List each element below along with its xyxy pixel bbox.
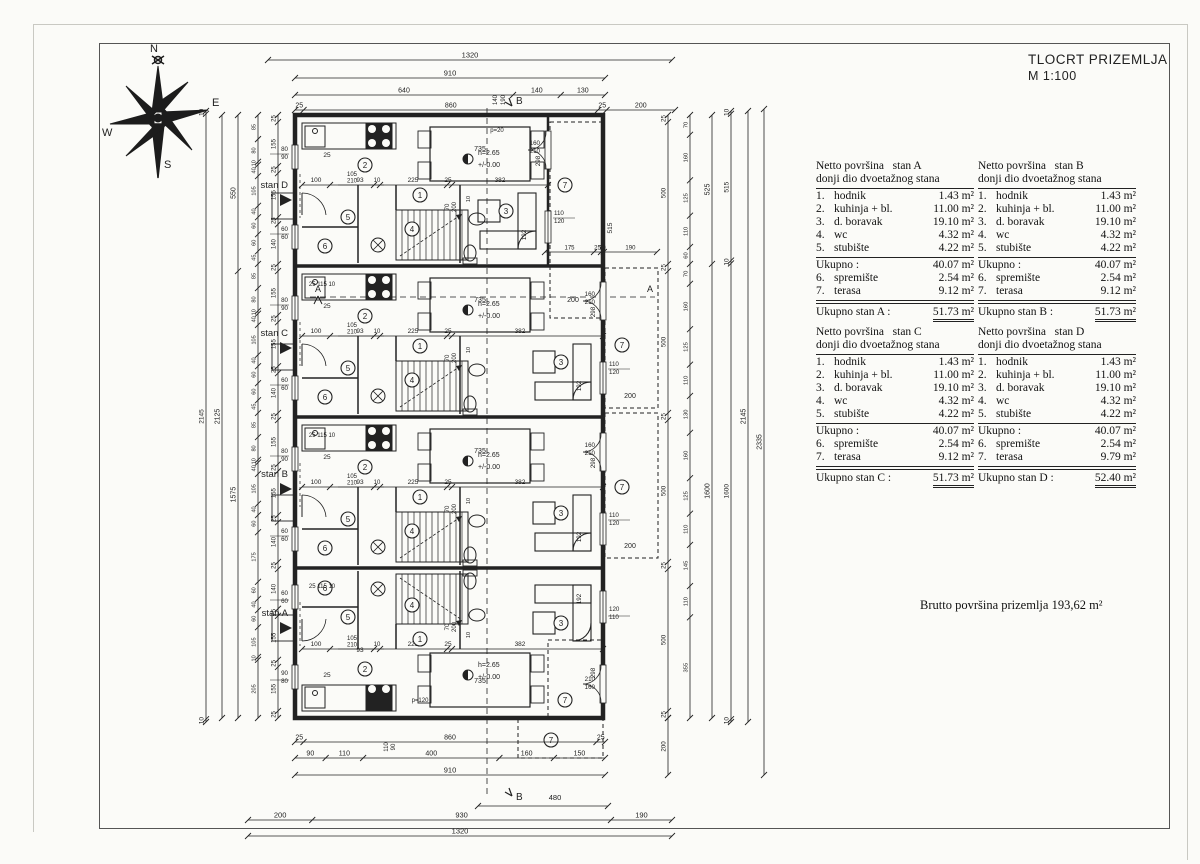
svg-text:80: 80 (281, 297, 288, 304)
area-table-stan-b: Netto površina stan B donji dio dvoetažn… (978, 160, 1136, 322)
svg-text:205: 205 (252, 684, 258, 693)
svg-text:105: 105 (347, 172, 358, 178)
svg-text:125: 125 (684, 491, 690, 501)
svg-text:1320: 1320 (452, 827, 469, 836)
svg-text:3: 3 (504, 207, 509, 216)
svg-text:225: 225 (408, 328, 419, 335)
svg-text:25: 25 (597, 735, 605, 742)
svg-text:25: 25 (272, 659, 278, 666)
svg-text:85: 85 (252, 422, 258, 428)
svg-text:60: 60 (252, 223, 258, 229)
total-row: Ukupno stan A :51.73 m² (816, 306, 974, 322)
svg-text:105: 105 (252, 335, 258, 344)
svg-text:515: 515 (607, 222, 614, 233)
svg-text:80: 80 (281, 678, 288, 685)
svg-text:90: 90 (281, 154, 288, 161)
svg-text:155: 155 (272, 287, 278, 298)
table-header: Netto površina stan D donji dio dvoetažn… (978, 326, 1136, 352)
svg-text:60: 60 (281, 377, 288, 384)
svg-text:1: 1 (418, 191, 423, 200)
svg-text:25: 25 (444, 177, 452, 184)
svg-text:+/-0.00: +/-0.00 (478, 464, 500, 471)
svg-text:125: 125 (684, 193, 690, 203)
svg-text:5: 5 (346, 213, 351, 222)
svg-text:1: 1 (418, 493, 423, 502)
svg-text:60: 60 (252, 389, 258, 395)
subtotal-row: Ukupno :40.07 m² (978, 425, 1136, 438)
svg-text:382: 382 (495, 177, 506, 184)
svg-text:stan D: stan D (261, 180, 289, 191)
svg-text:160: 160 (684, 153, 690, 163)
svg-text:25: 25 (323, 672, 331, 679)
svg-text:120: 120 (609, 606, 620, 613)
svg-text:140: 140 (531, 88, 543, 95)
svg-text:355: 355 (684, 663, 690, 673)
svg-text:200: 200 (624, 543, 636, 550)
svg-text:160: 160 (684, 302, 690, 312)
svg-text:200: 200 (274, 811, 287, 820)
terraces: 720072007200775151752510190 (518, 122, 660, 758)
svg-text:60: 60 (281, 590, 288, 597)
table-row: 5.stubište4.22 m² (978, 242, 1136, 255)
svg-text:25: 25 (272, 464, 278, 471)
svg-text:298: 298 (535, 155, 542, 166)
svg-text:210: 210 (347, 481, 358, 487)
svg-text:70: 70 (684, 271, 690, 277)
svg-text:155: 155 (272, 436, 278, 447)
svg-text:200: 200 (452, 201, 458, 212)
table-row: 4.wc4.32 m² (816, 395, 974, 408)
svg-text:90: 90 (391, 743, 397, 750)
area-table-stan-a: Netto površina stan A donji dio dvoetažn… (816, 160, 974, 322)
title-block: TLOCRT PRIZEMLJA M 1:100 (1028, 52, 1168, 83)
svg-text:200: 200 (452, 503, 458, 514)
svg-text:2: 2 (363, 161, 368, 170)
svg-text:25: 25 (272, 315, 278, 322)
svg-text:210: 210 (585, 299, 596, 306)
svg-text:105: 105 (252, 484, 258, 493)
unit-stan-d: 25932735h=2.65+/-0.00p=20100105210102252… (261, 123, 575, 264)
svg-text:105: 105 (252, 186, 258, 195)
svg-text:5: 5 (346, 515, 351, 524)
svg-text:160: 160 (521, 751, 533, 758)
svg-text:10: 10 (374, 642, 381, 648)
svg-text:480: 480 (543, 803, 544, 804)
svg-text:25: 25 (444, 641, 452, 648)
svg-text:298: 298 (590, 306, 597, 317)
svg-text:60: 60 (281, 536, 288, 543)
svg-text:6: 6 (323, 393, 328, 402)
table-row: 6.spremište2.54 m² (978, 272, 1136, 285)
svg-text:500: 500 (661, 336, 668, 347)
svg-text:10: 10 (252, 309, 258, 315)
svg-text:90: 90 (281, 305, 288, 312)
svg-text:25: 25 (661, 561, 668, 568)
svg-text:80: 80 (252, 147, 258, 153)
svg-text:2335: 2335 (757, 434, 764, 450)
table-row: 6.spremište2.54 m² (978, 438, 1136, 451)
svg-text:60: 60 (281, 234, 288, 241)
svg-text:105: 105 (347, 323, 358, 329)
table-row: 4.wc4.32 m² (816, 229, 974, 242)
svg-text:25 115 10: 25 115 10 (309, 282, 336, 288)
svg-text:515: 515 (724, 181, 731, 192)
svg-text:80: 80 (252, 445, 258, 451)
svg-text:500: 500 (661, 187, 668, 198)
table-row: 4.wc4.32 m² (978, 229, 1136, 242)
svg-text:100: 100 (311, 328, 322, 335)
total-row: Ukupno stan B :51.73 m² (978, 306, 1136, 322)
svg-text:225: 225 (408, 177, 419, 184)
svg-text:2: 2 (363, 665, 368, 674)
svg-text:500: 500 (661, 485, 668, 496)
table-row: 5.stubište4.22 m² (816, 408, 974, 421)
table-row: 2.kuhinja + bl.11.00 m² (978, 203, 1136, 216)
svg-text:210: 210 (585, 450, 596, 457)
svg-text:stan C: stan C (261, 328, 289, 339)
svg-text:25: 25 (272, 264, 278, 271)
svg-text:90: 90 (306, 751, 314, 758)
subtotal-row: Ukupno :40.07 m² (816, 425, 974, 438)
svg-text:155: 155 (272, 487, 278, 498)
svg-text:382: 382 (515, 328, 526, 335)
svg-text:85: 85 (252, 124, 258, 130)
svg-text:155: 155 (272, 189, 278, 200)
svg-text:70: 70 (445, 354, 451, 361)
svg-text:400: 400 (425, 751, 437, 758)
svg-text:25: 25 (272, 710, 278, 717)
svg-text:h=2.65: h=2.65 (478, 452, 500, 459)
svg-text:2145: 2145 (741, 409, 748, 425)
svg-text:100: 100 (311, 641, 322, 648)
svg-text:100: 100 (311, 479, 322, 486)
svg-text:h=2.65: h=2.65 (478, 301, 500, 308)
table-row: 3.d. boravak19.10 m² (816, 216, 974, 229)
svg-text:160: 160 (530, 140, 541, 147)
table-row: 2.kuhinja + bl.11.00 m² (816, 203, 974, 216)
svg-text:110: 110 (609, 512, 619, 519)
svg-text:1575: 1575 (231, 487, 238, 503)
svg-text:150: 150 (574, 751, 586, 758)
svg-text:N: N (150, 43, 158, 55)
svg-text:10: 10 (374, 178, 381, 184)
svg-text:10: 10 (466, 632, 472, 638)
svg-text:70: 70 (445, 203, 451, 210)
svg-text:7: 7 (549, 736, 554, 745)
svg-text:640: 640 (398, 88, 410, 95)
svg-text:7: 7 (563, 181, 568, 190)
svg-text:3: 3 (559, 358, 564, 367)
svg-text:190: 190 (625, 246, 636, 252)
svg-text:25: 25 (295, 103, 303, 110)
svg-text:210: 210 (347, 643, 358, 649)
svg-text:110: 110 (554, 210, 564, 217)
svg-text:155: 155 (272, 683, 278, 694)
svg-text:h=2.65: h=2.65 (478, 150, 500, 157)
svg-text:200: 200 (452, 621, 458, 632)
page-edge-right (1187, 24, 1188, 860)
svg-text:5: 5 (346, 613, 351, 622)
svg-text:1600: 1600 (705, 483, 712, 499)
svg-text:B: B (516, 792, 523, 803)
svg-text:500: 500 (661, 634, 668, 645)
svg-text:1: 1 (418, 635, 423, 644)
svg-text:175: 175 (252, 552, 258, 561)
svg-text:110: 110 (339, 751, 350, 758)
svg-text:110: 110 (684, 597, 690, 606)
svg-text:80: 80 (281, 448, 288, 455)
svg-text:155: 155 (272, 138, 278, 149)
svg-text:1320: 1320 (462, 51, 479, 60)
table-header: Netto površina stan C donji dio dvoetažn… (816, 326, 974, 352)
svg-text:210: 210 (530, 148, 541, 155)
svg-text:25: 25 (323, 303, 331, 310)
svg-text:4: 4 (410, 225, 415, 234)
svg-text:85: 85 (252, 273, 258, 279)
svg-text:40: 40 (252, 208, 258, 214)
svg-text:25: 25 (272, 413, 278, 420)
svg-text:25: 25 (272, 561, 278, 568)
svg-text:45: 45 (252, 254, 258, 260)
svg-text:910: 910 (444, 766, 457, 775)
svg-text:45: 45 (252, 403, 258, 409)
svg-text:200: 200 (661, 741, 668, 752)
svg-text:140: 140 (272, 238, 278, 249)
svg-text:10: 10 (466, 196, 472, 202)
svg-text:7: 7 (563, 696, 568, 705)
svg-text:10: 10 (374, 329, 381, 335)
svg-text:h=2.65: h=2.65 (478, 662, 500, 669)
page-edge-top (33, 24, 1187, 25)
svg-text:25: 25 (661, 115, 668, 122)
svg-text:80: 80 (281, 146, 288, 153)
table-row: 2.kuhinja + bl.11.00 m² (978, 369, 1136, 382)
svg-text:130: 130 (684, 410, 690, 420)
svg-text:4: 4 (410, 376, 415, 385)
svg-text:25: 25 (444, 328, 452, 335)
svg-text:4: 4 (410, 601, 415, 610)
svg-text:550: 550 (231, 187, 238, 199)
svg-text:110: 110 (384, 742, 390, 752)
unit-stan-a: 25932735h=2.65+/-0.00p=12010010521010225… (262, 570, 630, 711)
svg-text:105: 105 (347, 474, 358, 480)
svg-text:93: 93 (356, 177, 364, 184)
svg-text:25: 25 (272, 515, 278, 522)
svg-text:p=120: p=120 (412, 698, 430, 704)
svg-text:145: 145 (684, 561, 690, 571)
svg-text:+/-0.00: +/-0.00 (478, 162, 500, 169)
svg-text:60: 60 (281, 226, 288, 233)
svg-text:25: 25 (272, 366, 278, 373)
table-row: 3.d. boravak19.10 m² (978, 382, 1136, 395)
floor-plan: 720072007200775151752510190BBAA140190480… (190, 30, 780, 842)
svg-text:70: 70 (445, 505, 451, 512)
svg-text:90: 90 (281, 456, 288, 463)
svg-text:200: 200 (452, 352, 458, 363)
svg-text:25: 25 (323, 454, 331, 461)
total-row: Ukupno stan D :52.40 m² (978, 472, 1136, 488)
b480-chain: 480 (475, 803, 611, 810)
svg-text:525: 525 (705, 184, 712, 196)
svg-text:10: 10 (374, 480, 381, 486)
svg-text:25: 25 (661, 264, 668, 271)
svg-text:60: 60 (281, 385, 288, 392)
svg-text:40: 40 (252, 601, 258, 607)
svg-text:160: 160 (585, 442, 596, 449)
svg-text:225: 225 (408, 479, 419, 486)
svg-text:60: 60 (252, 616, 258, 622)
svg-text:25: 25 (323, 152, 331, 159)
svg-text:200: 200 (624, 393, 636, 400)
svg-text:80: 80 (252, 296, 258, 302)
svg-text:210: 210 (585, 676, 596, 683)
subtotal-row: Ukupno :40.07 m² (978, 259, 1136, 272)
drawing-sheet: { "title_block": {"line1": "TLOCRT PRIZE… (0, 0, 1200, 864)
svg-text:160: 160 (585, 291, 596, 298)
drawing-title: TLOCRT PRIZEMLJA (1028, 52, 1168, 67)
svg-text:25: 25 (661, 710, 668, 717)
table-row: 7.terasa9.12 m² (816, 285, 974, 298)
table-row: 6.spremište2.54 m² (816, 438, 974, 451)
unit-stan-c: 25932735h=2.65+/-0.001001052101022525382… (261, 274, 630, 415)
svg-text:25: 25 (272, 217, 278, 224)
svg-text:120: 120 (554, 218, 565, 225)
svg-text:140: 140 (272, 536, 278, 547)
svg-text:A: A (647, 284, 653, 294)
svg-text:40: 40 (252, 316, 258, 322)
svg-text:70: 70 (684, 122, 690, 128)
svg-text:70: 70 (445, 623, 451, 630)
svg-text:60: 60 (281, 598, 288, 605)
svg-text:25: 25 (272, 115, 278, 122)
svg-text:930: 930 (455, 811, 468, 820)
svg-text:40: 40 (252, 506, 258, 512)
svg-text:2: 2 (363, 312, 368, 321)
table-row: 1.hodnik1.43 m² (816, 356, 974, 369)
svg-text:2145: 2145 (199, 409, 206, 424)
area-table-stan-d: Netto površina stan D donji dio dvoetažn… (978, 326, 1136, 488)
svg-text:+/-0.00: +/-0.00 (478, 674, 500, 681)
table-header: Netto površina stan B donji dio dvoetažn… (978, 160, 1136, 186)
svg-text:210: 210 (347, 179, 358, 185)
svg-text:175: 175 (564, 246, 575, 252)
svg-text:25: 25 (272, 608, 278, 615)
table-row: 7.terasa9.12 m² (816, 451, 974, 464)
svg-text:382: 382 (515, 641, 526, 648)
svg-text:W: W (102, 127, 113, 139)
svg-text:100: 100 (311, 177, 322, 184)
svg-text:25 115 10: 25 115 10 (309, 433, 336, 439)
svg-text:10: 10 (252, 655, 258, 661)
svg-text:90: 90 (281, 670, 288, 677)
svg-text:10: 10 (252, 458, 258, 464)
table-row: 1.hodnik1.43 m² (816, 190, 974, 203)
svg-text:110: 110 (684, 525, 690, 534)
area-table-stan-c: Netto površina stan C donji dio dvoetažn… (816, 326, 974, 488)
svg-text:25: 25 (444, 479, 452, 486)
table-row: 2.kuhinja + bl.11.00 m² (816, 369, 974, 382)
svg-text:120: 120 (609, 520, 620, 527)
svg-text:40: 40 (252, 167, 258, 173)
svg-text:210: 210 (347, 330, 358, 336)
table-row: 7.terasa9.79 m² (978, 451, 1136, 464)
svg-text:B: B (516, 96, 523, 107)
drawing-scale: M 1:100 (1028, 69, 1168, 83)
table-row: 7.terasa9.12 m² (978, 285, 1136, 298)
svg-text:10: 10 (252, 160, 258, 166)
svg-text:7: 7 (620, 483, 625, 492)
svg-text:60: 60 (252, 587, 258, 593)
total-row: Ukupno stan C :51.73 m² (816, 472, 974, 488)
table-row: 5.stubište4.22 m² (978, 408, 1136, 421)
svg-text:155: 155 (272, 338, 278, 349)
svg-text:4: 4 (410, 527, 415, 536)
svg-text:105: 105 (252, 637, 258, 646)
svg-text:160: 160 (585, 684, 596, 691)
svg-text:60: 60 (281, 528, 288, 535)
svg-text:6: 6 (323, 242, 328, 251)
svg-text:7: 7 (620, 341, 625, 350)
svg-text:10: 10 (466, 347, 472, 353)
svg-text:25: 25 (661, 413, 668, 420)
svg-text:1600: 1600 (724, 484, 731, 499)
page-edge-left (33, 24, 34, 832)
subtotal-row: Ukupno :40.07 m² (816, 259, 974, 272)
svg-text:480: 480 (549, 793, 562, 802)
svg-text:160: 160 (684, 451, 690, 461)
svg-text:200: 200 (567, 297, 579, 304)
table-row: 1.hodnik1.43 m² (978, 356, 1136, 369)
svg-text:S: S (164, 159, 171, 171)
table-row: 4.wc4.32 m² (978, 395, 1136, 408)
svg-text:860: 860 (445, 103, 457, 110)
svg-text:120: 120 (609, 369, 620, 376)
svg-text:155: 155 (272, 632, 278, 643)
svg-text:60: 60 (252, 372, 258, 378)
svg-text:40: 40 (252, 465, 258, 471)
svg-text:140: 140 (272, 583, 278, 594)
table-row: 3.d. boravak19.10 m² (978, 216, 1136, 229)
svg-text:110: 110 (609, 614, 619, 621)
svg-text:93: 93 (356, 479, 364, 486)
svg-text:110: 110 (684, 227, 690, 236)
svg-text:40: 40 (252, 357, 258, 363)
svg-text:6: 6 (323, 544, 328, 553)
svg-text:105: 105 (347, 636, 358, 642)
svg-text:60: 60 (684, 252, 690, 258)
svg-text:25: 25 (272, 166, 278, 173)
svg-text:3: 3 (559, 619, 564, 628)
svg-text:25 115 10: 25 115 10 (309, 584, 336, 590)
svg-text:5: 5 (346, 364, 351, 373)
table-row: 6.spremište2.54 m² (816, 272, 974, 285)
svg-text:93: 93 (356, 328, 364, 335)
svg-text:125: 125 (684, 342, 690, 352)
svg-text:860: 860 (444, 735, 456, 742)
svg-text:10: 10 (466, 498, 472, 504)
svg-text:+/-0.00: +/-0.00 (478, 313, 500, 320)
svg-text:910: 910 (444, 69, 457, 78)
svg-text:140: 140 (272, 387, 278, 398)
svg-text:2: 2 (363, 463, 368, 472)
table-row: 5.stubište4.22 m² (816, 242, 974, 255)
svg-text:110: 110 (684, 376, 690, 385)
svg-text:25: 25 (598, 103, 606, 110)
svg-text:298: 298 (590, 457, 597, 468)
svg-text:60: 60 (252, 521, 258, 527)
svg-text:190: 190 (501, 94, 507, 105)
svg-text:200: 200 (635, 103, 647, 110)
